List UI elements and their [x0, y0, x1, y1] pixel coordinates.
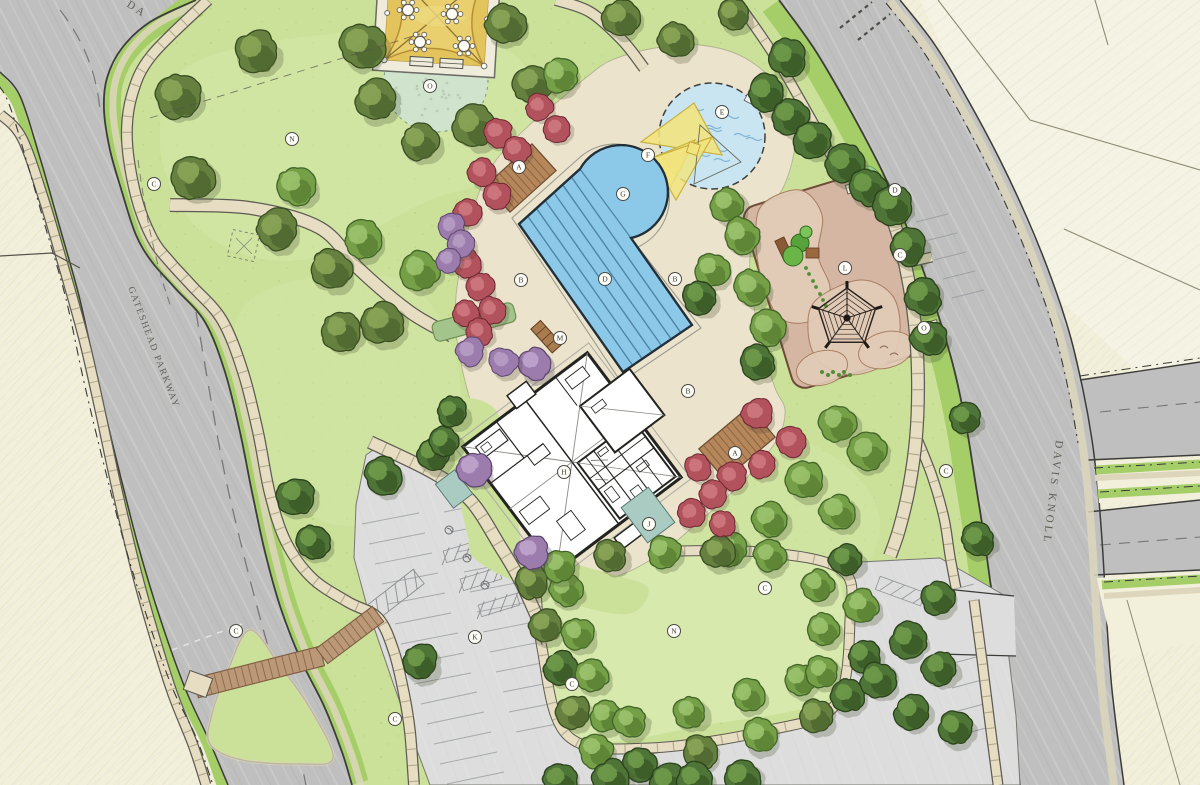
- svg-text:C: C: [569, 680, 574, 689]
- svg-text:C: C: [943, 467, 948, 476]
- svg-text:H: H: [561, 468, 567, 477]
- svg-text:G: G: [620, 190, 626, 199]
- svg-text:O: O: [921, 324, 927, 333]
- svg-text:M: M: [557, 334, 564, 343]
- svg-text:A: A: [732, 449, 738, 458]
- svg-text:F: F: [646, 151, 650, 160]
- svg-text:B: B: [672, 275, 677, 284]
- svg-text:N: N: [289, 135, 295, 144]
- svg-text:D: D: [602, 275, 608, 284]
- svg-text:B: B: [685, 387, 690, 396]
- svg-text:E: E: [720, 108, 725, 117]
- svg-text:A: A: [516, 163, 522, 172]
- svg-text:C: C: [897, 251, 902, 260]
- svg-text:C: C: [151, 180, 156, 189]
- svg-text:C: C: [392, 715, 397, 724]
- svg-text:L: L: [843, 264, 848, 273]
- svg-text:J: J: [648, 520, 651, 529]
- svg-text:C: C: [762, 584, 767, 593]
- svg-text:C: C: [233, 627, 238, 636]
- svg-text:D: D: [892, 186, 898, 195]
- svg-text:B: B: [518, 276, 523, 285]
- svg-text:N: N: [671, 627, 677, 636]
- svg-text:K: K: [472, 633, 478, 642]
- svg-text:O: O: [427, 82, 433, 91]
